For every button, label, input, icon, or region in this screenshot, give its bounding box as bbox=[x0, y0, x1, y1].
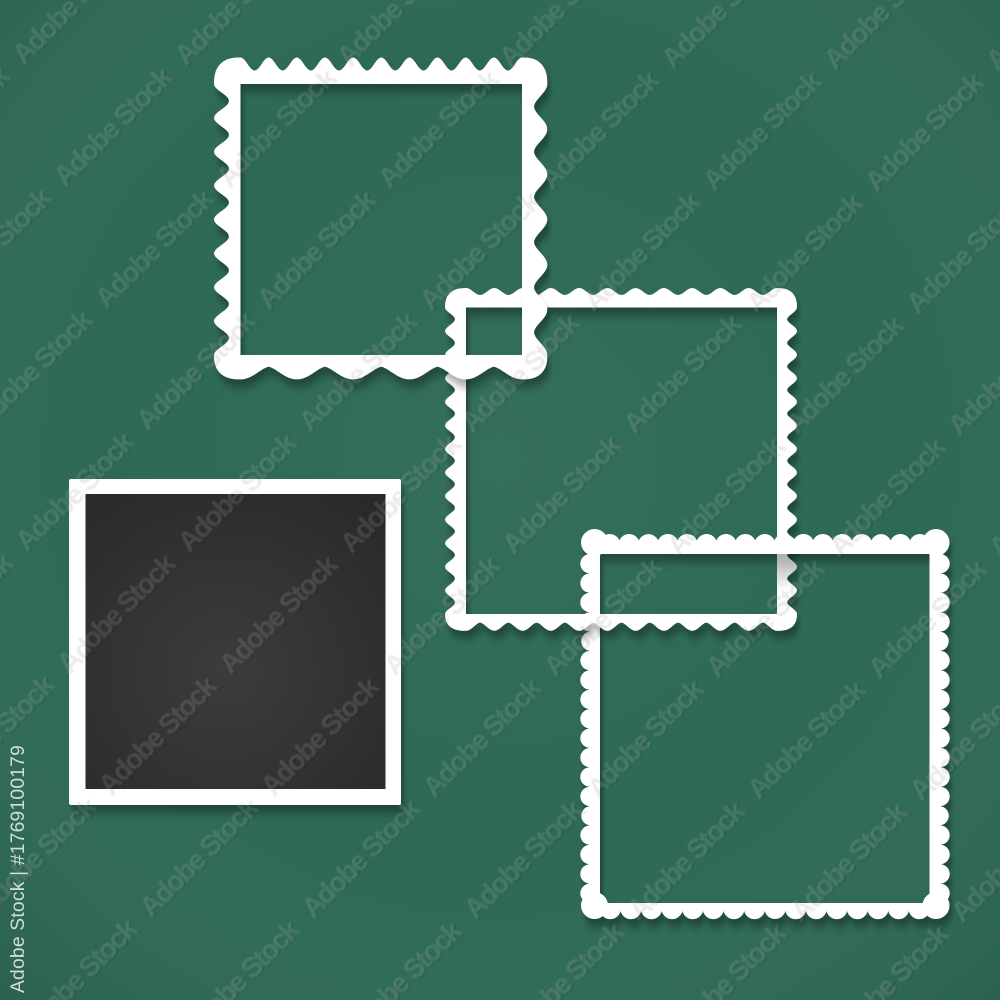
svg-text:Adobe Stock | #1769100179: Adobe Stock | #1769100179 bbox=[8, 745, 29, 993]
